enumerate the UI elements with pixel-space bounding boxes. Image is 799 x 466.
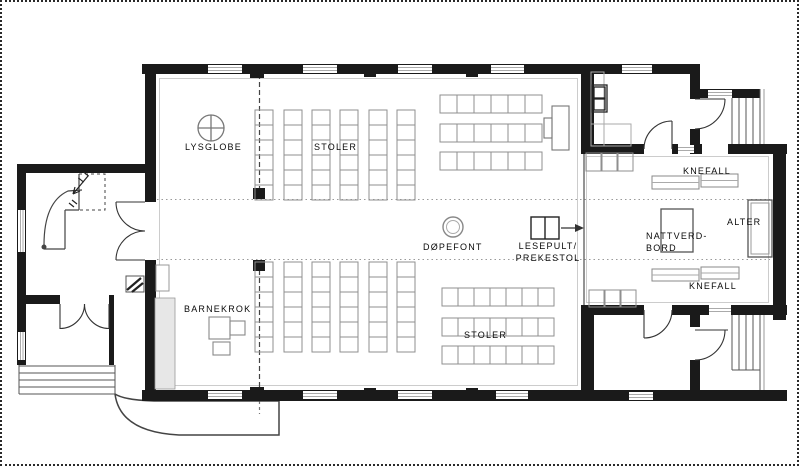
chancel-chairs: [586, 153, 636, 307]
chairs-top-block: [255, 95, 542, 200]
hatch-icon: [126, 276, 144, 292]
sacristy-counter: [591, 72, 631, 146]
south-porch-double-door: [60, 304, 109, 329]
organ-icon: [544, 106, 569, 150]
wall-cavity: [155, 298, 175, 389]
sacristy-south-door: [644, 121, 672, 149]
label-nattverd-line1: NATTVERD-: [646, 230, 708, 242]
sink-icon: [592, 85, 607, 112]
windows: [18, 65, 732, 400]
label-knefall-top: KNEFALL: [683, 165, 731, 177]
label-lesepult-line2: PREKESTOL: [512, 252, 584, 264]
floor-plan-page: LYSGLOBE STOLER BARNEKROK DØPEFONT LESEP…: [0, 0, 799, 466]
pulpit-arrow-icon: [561, 224, 584, 232]
label-alter: ALTER: [727, 216, 761, 228]
se-room-east-door: [695, 330, 728, 360]
label-barnekrok: BARNEKROK: [184, 303, 251, 315]
chairs-bottom-block: [255, 262, 554, 364]
label-nattverdbord: NATTVERD- BORD: [646, 230, 708, 254]
childrens-corner-furniture: [209, 317, 245, 355]
lectern-pulpit-icon: [531, 217, 559, 239]
west-steps: [19, 365, 115, 394]
label-dopefont: DØPEFONT: [423, 241, 483, 253]
baptismal-font-icon: [443, 217, 463, 237]
label-lesepult-line1: LESEPULT/: [512, 240, 584, 252]
label-lesepult-prekestol: LESEPULT/ PREKESTOL: [512, 240, 584, 264]
se-room-north-door: [644, 310, 672, 338]
label-stoler-top: STOLER: [314, 141, 357, 153]
vestibule-double-door: [116, 202, 145, 260]
label-knefall-bottom: KNEFALL: [689, 280, 737, 292]
label-stoler-bottom: STOLER: [464, 329, 507, 341]
vestibule-stair: [42, 174, 83, 250]
gallery-opening-dashed: [79, 174, 105, 210]
stairs-southeast-icon: [732, 315, 764, 390]
label-lysglobe: LYSGLOBE: [185, 141, 242, 153]
label-nattverd-line2: BORD: [646, 242, 708, 254]
shelf-icon: [156, 265, 169, 291]
sacristy-east-door: [695, 99, 725, 129]
lysglobe-icon: [198, 115, 224, 141]
kneeler-benches: [652, 174, 739, 281]
